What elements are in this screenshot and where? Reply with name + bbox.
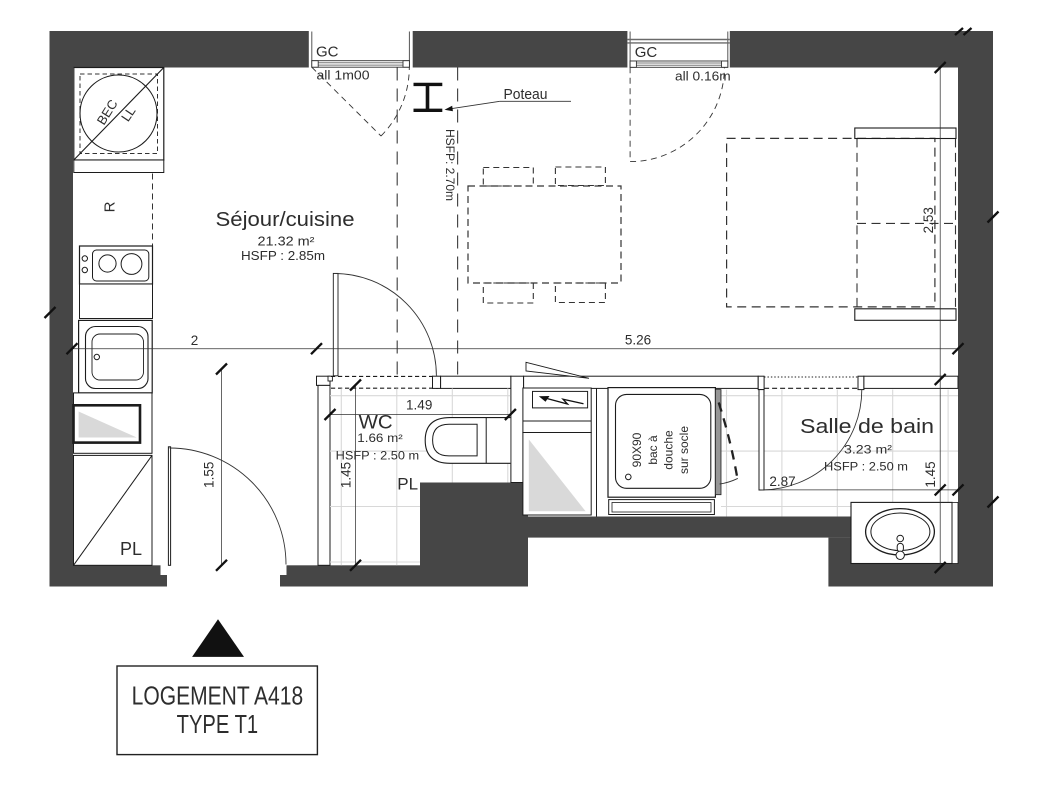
svg-text:sur socle: sur socle	[677, 426, 691, 474]
svg-text:21.32 m²: 21.32 m²	[258, 235, 315, 249]
svg-text:HSFP : 2.50 m: HSFP : 2.50 m	[336, 451, 420, 463]
svg-text:R: R	[102, 201, 119, 212]
svg-text:GC: GC	[316, 44, 339, 61]
svg-text:1.66 m²: 1.66 m²	[357, 433, 403, 445]
svg-text:1.49: 1.49	[406, 398, 432, 413]
svg-text:GC: GC	[635, 44, 658, 61]
svg-text:1.45: 1.45	[923, 461, 938, 487]
svg-text:HSFP: 2.70m: HSFP: 2.70m	[443, 129, 457, 201]
svg-text:Séjour/cuisine: Séjour/cuisine	[216, 209, 355, 231]
svg-text:90X90: 90X90	[630, 432, 644, 467]
svg-text:5.26: 5.26	[625, 333, 651, 348]
svg-text:WC: WC	[359, 413, 393, 434]
svg-text:all 0.16m: all 0.16m	[675, 70, 731, 84]
svg-text:PL: PL	[120, 539, 142, 559]
svg-text:3.23 m²: 3.23 m²	[844, 443, 892, 457]
svg-text:HSFP : 2.50 m: HSFP : 2.50 m	[824, 460, 908, 474]
svg-text:LOGEMENT A418: LOGEMENT A418	[132, 683, 304, 711]
svg-text:2.53: 2.53	[921, 207, 936, 233]
svg-text:PL: PL	[397, 475, 418, 494]
svg-text:Salle de bain: Salle de bain	[800, 416, 934, 438]
svg-text:douche: douche	[661, 430, 675, 470]
svg-text:HSFP : 2.85m: HSFP : 2.85m	[241, 249, 325, 263]
svg-text:1.55: 1.55	[202, 462, 217, 488]
svg-text:TYPE T1: TYPE T1	[177, 711, 259, 739]
svg-text:2.87: 2.87	[769, 474, 795, 489]
svg-text:Poteau: Poteau	[504, 87, 548, 103]
svg-text:1.45: 1.45	[339, 462, 354, 488]
svg-text:bac à: bac à	[646, 435, 660, 465]
svg-text:2: 2	[191, 333, 199, 348]
svg-text:all 1m00: all 1m00	[317, 69, 370, 83]
